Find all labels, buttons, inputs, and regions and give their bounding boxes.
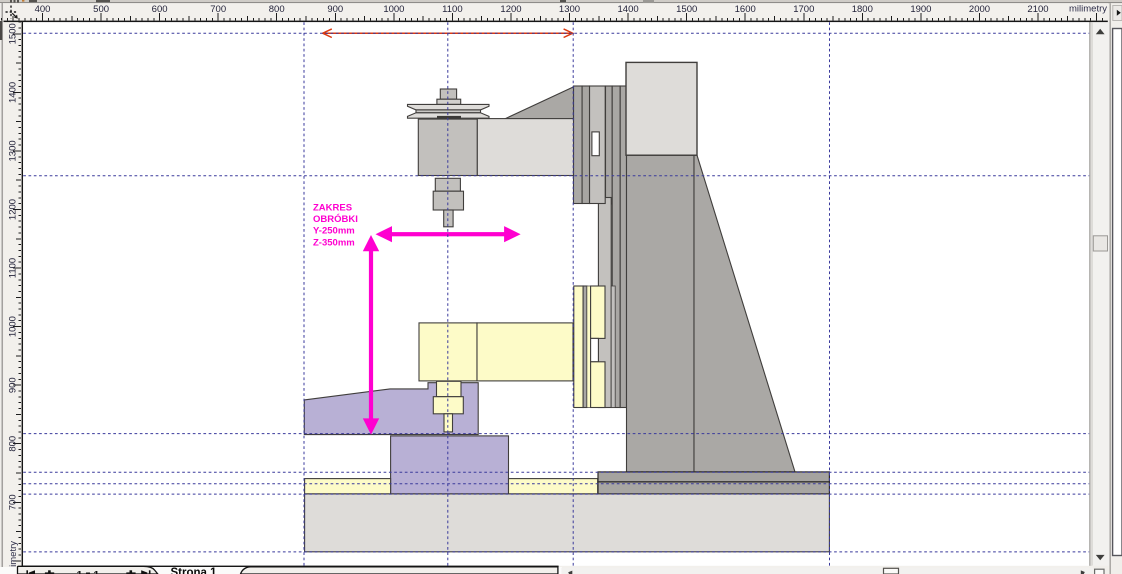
svg-text:900: 900 [327,4,343,15]
svg-text:2100: 2100 [1027,4,1048,15]
svg-text:ZAKRES: ZAKRES [313,202,352,213]
svg-text:700: 700 [8,494,19,510]
svg-text:1800: 1800 [852,4,873,15]
svg-text:1100: 1100 [8,258,19,278]
svg-text:1900: 1900 [910,4,931,15]
svg-text:1300: 1300 [8,140,19,161]
svg-text:Strona 1: Strona 1 [171,567,218,574]
svg-text:700: 700 [210,4,226,15]
svg-text:900: 900 [8,377,19,393]
svg-text:Z-350mm: Z-350mm [313,237,355,248]
svg-text:1000: 1000 [383,4,404,15]
svg-text:1600: 1600 [735,4,756,15]
svg-text:1200: 1200 [500,4,521,15]
svg-text:600: 600 [152,4,168,15]
svg-text:1300: 1300 [559,4,580,15]
svg-text:1500: 1500 [676,4,697,15]
svg-text:800: 800 [8,436,19,452]
svg-text:800: 800 [269,4,285,15]
svg-text:1400: 1400 [618,4,639,15]
svg-text:400: 400 [35,4,51,15]
svg-text:1 z 1: 1 z 1 [77,569,100,574]
svg-text:1100: 1100 [442,4,462,15]
svg-text:1200: 1200 [8,199,19,220]
svg-text:2000: 2000 [969,4,990,15]
svg-text:OBRÓBKI: OBRÓBKI [313,213,358,225]
svg-text:1500: 1500 [8,23,19,44]
svg-text:1700: 1700 [793,4,814,15]
svg-text:500: 500 [93,4,109,15]
svg-text:Y-250mm: Y-250mm [313,225,355,236]
svg-text:1400: 1400 [8,82,19,103]
svg-text:1000: 1000 [8,316,19,337]
svg-text:milimetry: milimetry [1069,4,1107,15]
